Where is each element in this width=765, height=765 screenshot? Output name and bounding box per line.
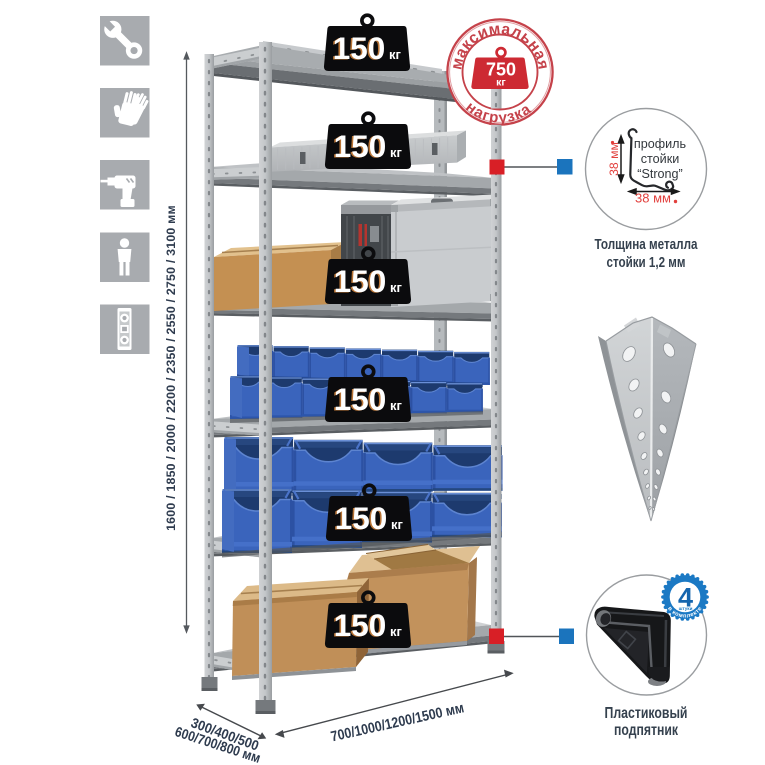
- svg-text:150: 150: [335, 500, 388, 536]
- svg-text:Пластиковый: Пластиковый: [605, 705, 688, 722]
- svg-text:150: 150: [334, 128, 387, 164]
- svg-text:1600 / 1850 / 2000 / 2200 / 23: 1600 / 1850 / 2000 / 2200 / 2350 / 2550 …: [164, 205, 178, 531]
- svg-text:профиль: профиль: [634, 137, 687, 151]
- svg-text:стойки: стойки: [641, 152, 680, 166]
- svg-text:Толщина металла: Толщина металла: [595, 236, 699, 253]
- svg-text:38 мм: 38 мм: [635, 191, 671, 206]
- svg-text:38 мм: 38 мм: [607, 142, 621, 176]
- svg-text:кг: кг: [390, 145, 403, 160]
- svg-text:кг: кг: [496, 77, 506, 89]
- svg-text:“Strong”: “Strong”: [637, 167, 683, 181]
- svg-text:кг: кг: [390, 280, 403, 295]
- svg-text:кг: кг: [389, 47, 402, 62]
- svg-text:подпятник: подпятник: [614, 722, 678, 739]
- svg-text:150: 150: [334, 607, 387, 643]
- svg-text:кг: кг: [390, 624, 403, 639]
- svg-text:150: 150: [334, 381, 387, 417]
- svg-text:кг: кг: [391, 517, 404, 532]
- svg-text:кг: кг: [390, 398, 403, 413]
- svg-text:штуки: штуки: [679, 606, 693, 611]
- svg-text:стойки 1,2 мм: стойки 1,2 мм: [607, 254, 686, 271]
- svg-text:150: 150: [334, 263, 387, 299]
- svg-text:150: 150: [333, 30, 386, 66]
